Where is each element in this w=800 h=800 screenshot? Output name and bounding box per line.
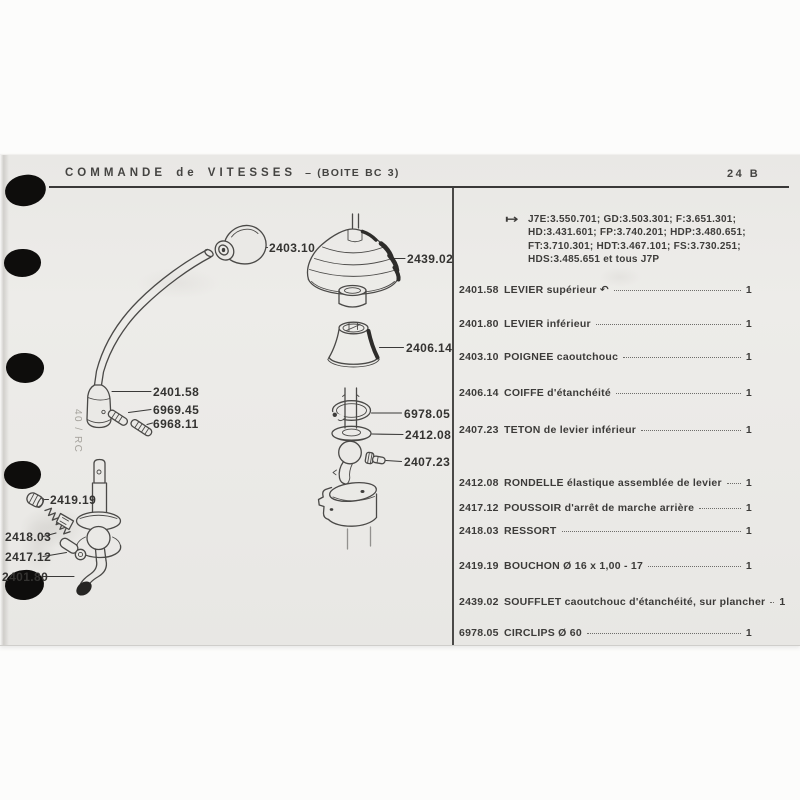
diagram-label: 2417.12 xyxy=(5,550,51,564)
diagram-label: 2401.58 xyxy=(153,385,199,399)
diagram-label: 2403.10 xyxy=(269,241,315,255)
diagram-label: 6968.11 xyxy=(153,417,199,431)
exploded-view-drawing xyxy=(0,0,800,800)
diagram-label: 2439.02 xyxy=(407,252,453,266)
upper-lever-drawing xyxy=(87,248,214,427)
gear-knob-drawing xyxy=(211,225,266,263)
diagram-label: 2412.08 xyxy=(405,428,451,442)
lower-joint-drawing xyxy=(319,388,386,549)
diagram-label: 6978.05 xyxy=(404,407,450,421)
pushrod-poussoir-drawing xyxy=(58,537,85,560)
diagram-label: 2401.80 xyxy=(2,570,48,584)
scanned-catalog-page: COMMANDE de VITESSES– (BOITE BC 3) 24 B … xyxy=(0,0,800,800)
diagram-label: 6969.45 xyxy=(153,403,199,417)
screw-teton-drawing xyxy=(365,452,386,466)
diagram-label: 2419.19 xyxy=(50,493,96,507)
diagram-label: 2407.23 xyxy=(404,455,450,469)
pin-6968-drawing xyxy=(130,418,153,437)
plug-bouchon-drawing xyxy=(25,491,45,509)
boot-soufflet-drawing xyxy=(308,214,399,307)
diagram-label: 2406.14 xyxy=(406,341,452,355)
diagram-label: 2418.03 xyxy=(5,530,51,544)
sealing-cap-drawing xyxy=(328,322,379,367)
spring-seat-drawing xyxy=(57,514,74,530)
